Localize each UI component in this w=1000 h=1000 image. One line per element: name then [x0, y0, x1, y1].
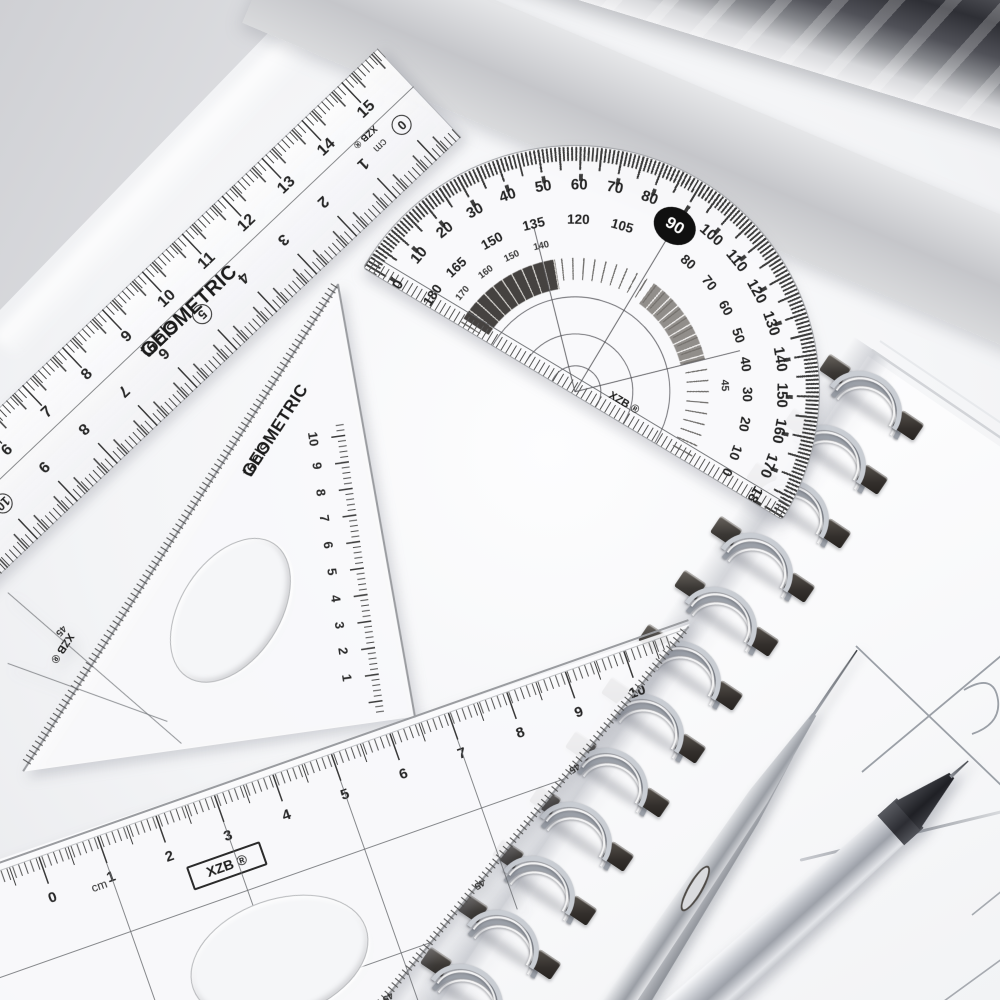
pen-tip-point: [949, 760, 969, 779]
photo-geometry-tools-scene: 1514131211109876 012345678910 GEOMETRIC …: [0, 0, 1000, 1000]
protractor-45-label: 45: [719, 379, 731, 391]
set-square-mid-side-number: 3: [332, 620, 348, 629]
protractor-scale-number: 50: [533, 177, 552, 196]
protractor-scale-number: 150: [774, 382, 791, 407]
set-square-mid-side-number: 8: [313, 488, 329, 497]
protractor-scale-number: 30: [740, 387, 755, 402]
protractor-scale-number: 140: [769, 345, 790, 372]
protractor-scale-number: 120: [567, 212, 590, 227]
protractor-scale-number: 40: [737, 356, 754, 373]
protractor-scale-number: 70: [605, 178, 625, 198]
protractor-scale-number: 20: [735, 415, 753, 433]
set-square-mid: 10987654321 GEOMETRIC tools XZB ® 45: [0, 280, 420, 781]
set-square-mid-side-number: 10: [305, 431, 322, 447]
protractor-scale-number: 60: [570, 176, 587, 193]
